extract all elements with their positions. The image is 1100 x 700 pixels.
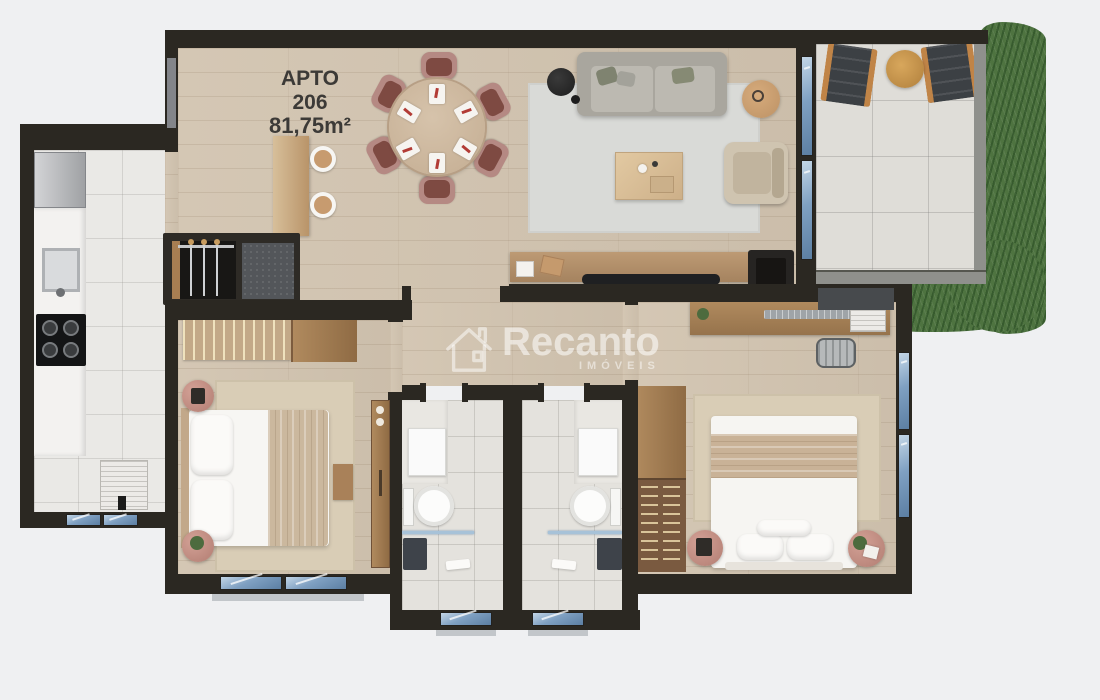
wall-top-balcony bbox=[808, 30, 988, 44]
unit-label: APTO 206 81,75m² bbox=[258, 68, 362, 137]
balcony-glass-door bbox=[801, 56, 813, 156]
master-entry-floor bbox=[622, 302, 638, 386]
nightstand-plant bbox=[190, 536, 204, 550]
bedroom1-window bbox=[220, 576, 282, 590]
wall-bedroom1-top bbox=[165, 300, 412, 320]
kitchen-window bbox=[103, 514, 138, 526]
console-decor-box bbox=[516, 261, 534, 277]
door-frame bbox=[500, 286, 509, 302]
unit-number: 206 bbox=[258, 92, 362, 113]
unit-building: APTO bbox=[258, 68, 362, 89]
fridge bbox=[34, 152, 86, 208]
cooktop-burner bbox=[63, 342, 79, 358]
door-frame bbox=[462, 383, 468, 402]
kitchen-faucet bbox=[56, 288, 65, 297]
balcony-lounger bbox=[920, 41, 979, 104]
wall-bedroom1-bottom bbox=[165, 574, 402, 594]
wardrobe-clothes bbox=[663, 486, 680, 566]
wall-top-main bbox=[165, 30, 816, 48]
balcony-round-table bbox=[886, 50, 924, 88]
dark-side-unit-inner bbox=[756, 258, 786, 286]
kitchen-sink bbox=[42, 248, 80, 292]
door-frame bbox=[625, 298, 638, 305]
nightstand-decor bbox=[696, 538, 712, 556]
master-bed-blanket bbox=[711, 434, 857, 478]
island-stool bbox=[310, 146, 336, 172]
master-small-pillow bbox=[757, 520, 811, 536]
grill-bar bbox=[178, 245, 234, 248]
grill-skewer-handle bbox=[188, 239, 194, 245]
balcony-lounger bbox=[820, 43, 878, 107]
dining-chair bbox=[421, 52, 457, 80]
island-counter bbox=[273, 136, 309, 236]
office-chair bbox=[816, 338, 856, 368]
door-frame bbox=[388, 392, 403, 400]
door-frame bbox=[388, 314, 403, 322]
bathroom2-shower-mat bbox=[597, 538, 622, 570]
dining-chair bbox=[419, 176, 455, 204]
grill-skewer-handle bbox=[214, 239, 220, 245]
bedroom1-wardrobe-rail bbox=[183, 318, 291, 360]
bathroom1-vanity bbox=[408, 428, 446, 476]
bedroom1-wardrobe-cabinet bbox=[291, 316, 357, 362]
bedroom1-pillow bbox=[191, 415, 233, 475]
bathroom2-window-sill bbox=[528, 630, 588, 636]
floor-lamp bbox=[547, 68, 575, 96]
kitchen-window bbox=[66, 514, 101, 526]
nightstand-decor bbox=[191, 388, 205, 404]
door-frame bbox=[584, 383, 590, 402]
wall-kitchen-top bbox=[20, 124, 178, 150]
sliding-door-handle bbox=[379, 470, 382, 496]
island-stool bbox=[310, 192, 336, 218]
armchair-cushion bbox=[733, 152, 771, 194]
cooktop-burner bbox=[63, 320, 79, 336]
wall-kitchen-left bbox=[20, 124, 34, 528]
candle bbox=[638, 164, 647, 173]
master-headboard bbox=[725, 562, 843, 570]
master-wardrobe-cabinet bbox=[636, 386, 686, 480]
decor-dot bbox=[652, 161, 658, 167]
side-table-decor bbox=[752, 90, 764, 102]
balcony-glass-door bbox=[801, 160, 813, 260]
balcony-railing-bottom bbox=[816, 270, 986, 284]
bathroom1-window bbox=[440, 612, 492, 626]
door-frame bbox=[402, 286, 411, 302]
bathroom1-shower-glass bbox=[402, 531, 474, 534]
wall-bathrooms-middle bbox=[503, 385, 522, 630]
cooktop-burner bbox=[42, 342, 58, 358]
desk-plant bbox=[697, 308, 709, 320]
bathroom2-window bbox=[532, 612, 584, 626]
bathroom2-shower-glass bbox=[548, 531, 622, 534]
door-frame bbox=[538, 383, 544, 402]
floor-plan: APTO 206 81,75m² Recanto IMÓVEIS bbox=[0, 0, 1100, 700]
grill-skewer bbox=[216, 244, 218, 296]
wall-bathroom2-top bbox=[586, 385, 622, 400]
sofa-pillow bbox=[671, 67, 695, 85]
master-window bbox=[898, 434, 910, 518]
armchair-back bbox=[772, 148, 784, 198]
bathroom2-toilet-tank bbox=[610, 488, 621, 526]
grill-counter-granite bbox=[242, 243, 294, 299]
bedroom1-door-opening-floor bbox=[390, 320, 402, 396]
bathroom1-window-sill bbox=[436, 630, 496, 636]
wall-master-bottom bbox=[622, 574, 912, 594]
grill-skewer bbox=[203, 244, 205, 296]
sliding-door-knob bbox=[376, 406, 384, 414]
door-frame bbox=[420, 383, 426, 402]
hallway-floor bbox=[402, 302, 622, 386]
bathroom1-toilet bbox=[414, 486, 454, 526]
bathroom1-toilet-tank bbox=[403, 488, 414, 526]
sliding-door-knob bbox=[376, 418, 384, 426]
wall-bedroom1-right bbox=[390, 396, 402, 574]
sofa-pillow bbox=[616, 71, 636, 88]
entrance-door bbox=[167, 58, 176, 128]
wall-bathroom1-top bbox=[466, 385, 503, 400]
master-window bbox=[898, 352, 910, 430]
bedroom1-bed-headboard bbox=[181, 408, 189, 548]
wardrobe-clothes bbox=[641, 486, 658, 566]
desk-keyboard bbox=[764, 310, 854, 319]
master-pillow bbox=[787, 534, 833, 560]
ac-slab bbox=[818, 288, 894, 310]
bedroom1-window bbox=[285, 576, 347, 590]
wall-bedroom1-left bbox=[165, 300, 178, 594]
grill-skewer bbox=[190, 244, 192, 296]
bedroom1-blanket bbox=[268, 410, 328, 546]
coffee-table-tray bbox=[650, 176, 674, 193]
floor-lamp-base bbox=[571, 95, 580, 104]
balcony-railing-right bbox=[974, 42, 986, 284]
bathroom2-toilet bbox=[570, 486, 610, 526]
place-setting bbox=[429, 84, 445, 104]
grill-skewer-handle bbox=[201, 239, 207, 245]
bathroom1-shower-mat bbox=[403, 538, 427, 570]
place-setting bbox=[429, 153, 445, 173]
bedroom1-foot-table bbox=[333, 464, 353, 500]
unit-area: 81,75m² bbox=[258, 115, 362, 137]
master-pillow bbox=[737, 534, 783, 560]
door-frame bbox=[625, 380, 638, 387]
cooktop-burner bbox=[42, 320, 58, 336]
bathroom2-vanity bbox=[578, 428, 618, 476]
laundry-faucet bbox=[118, 496, 126, 510]
bedroom1-window-sill bbox=[212, 594, 364, 601]
